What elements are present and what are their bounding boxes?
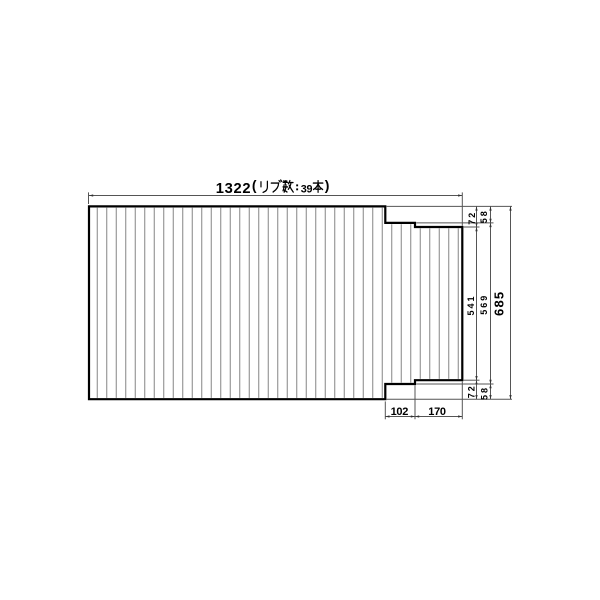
svg-text:170: 170 <box>428 406 446 418</box>
svg-text:39: 39 <box>301 183 313 195</box>
svg-text:102: 102 <box>391 406 409 418</box>
svg-text:58: 58 <box>479 209 489 223</box>
svg-text:72: 72 <box>467 211 477 225</box>
svg-text:569: 569 <box>479 294 489 315</box>
svg-text:685: 685 <box>492 291 507 316</box>
svg-text:1322: 1322 <box>216 181 251 197</box>
svg-text:541: 541 <box>466 294 476 315</box>
svg-text:72: 72 <box>467 384 477 398</box>
svg-text:58: 58 <box>480 386 490 400</box>
svg-text:(: ( <box>252 177 257 193</box>
svg-text:): ) <box>325 177 330 193</box>
